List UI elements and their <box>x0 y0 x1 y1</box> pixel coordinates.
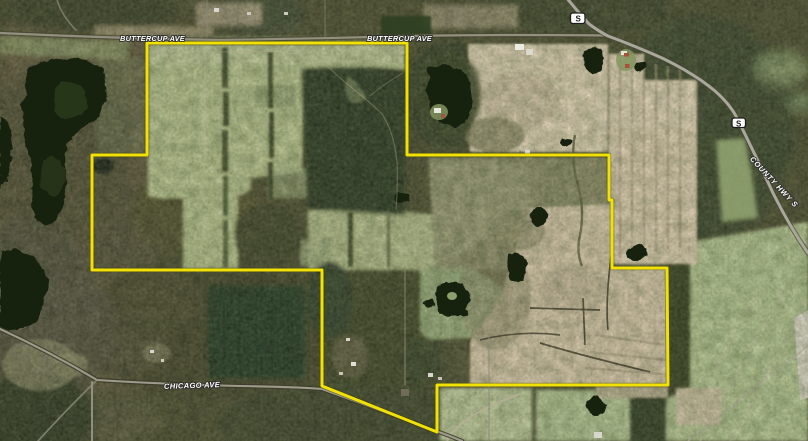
svg-text:BUTTERCUP AVE: BUTTERCUP AVE <box>120 34 186 43</box>
svg-text:BUTTERCUP AVE: BUTTERCUP AVE <box>367 34 433 43</box>
svg-text:S: S <box>576 15 582 24</box>
svg-text:S: S <box>736 119 742 128</box>
